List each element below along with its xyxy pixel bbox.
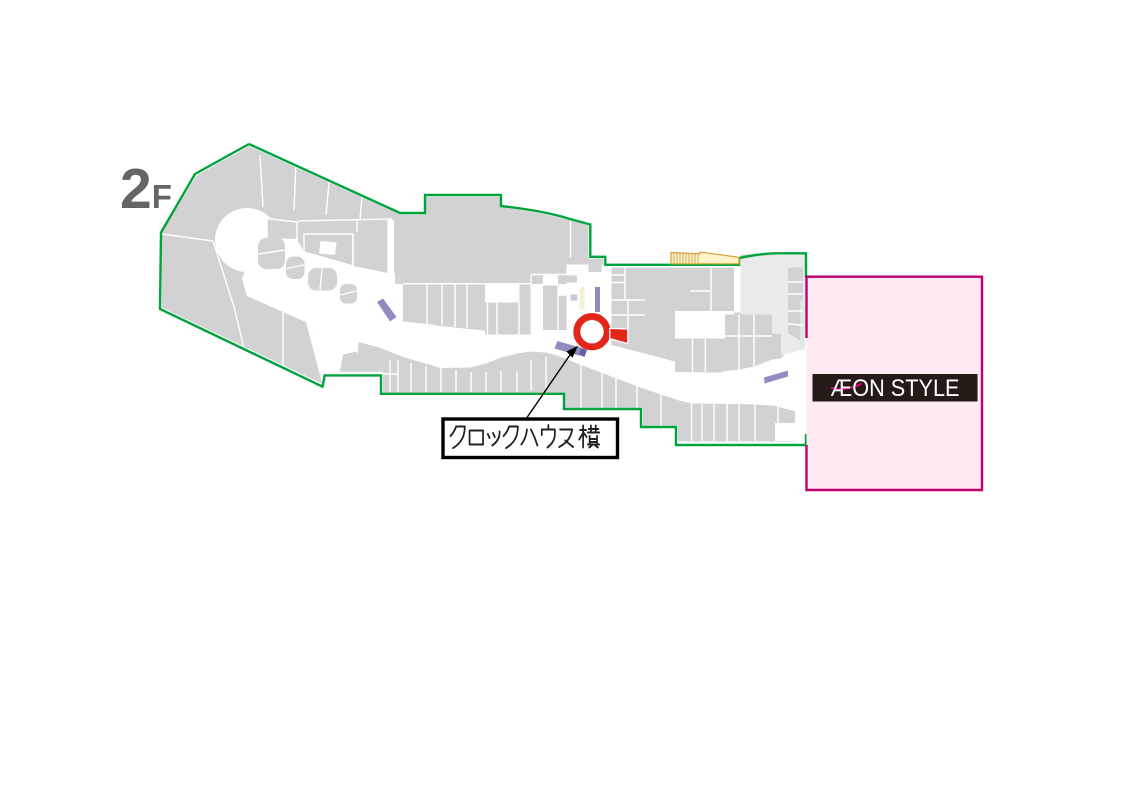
svg-text:ÆON STYLE: ÆON STYLE (831, 375, 960, 402)
svg-text:2F: 2F (120, 157, 172, 221)
